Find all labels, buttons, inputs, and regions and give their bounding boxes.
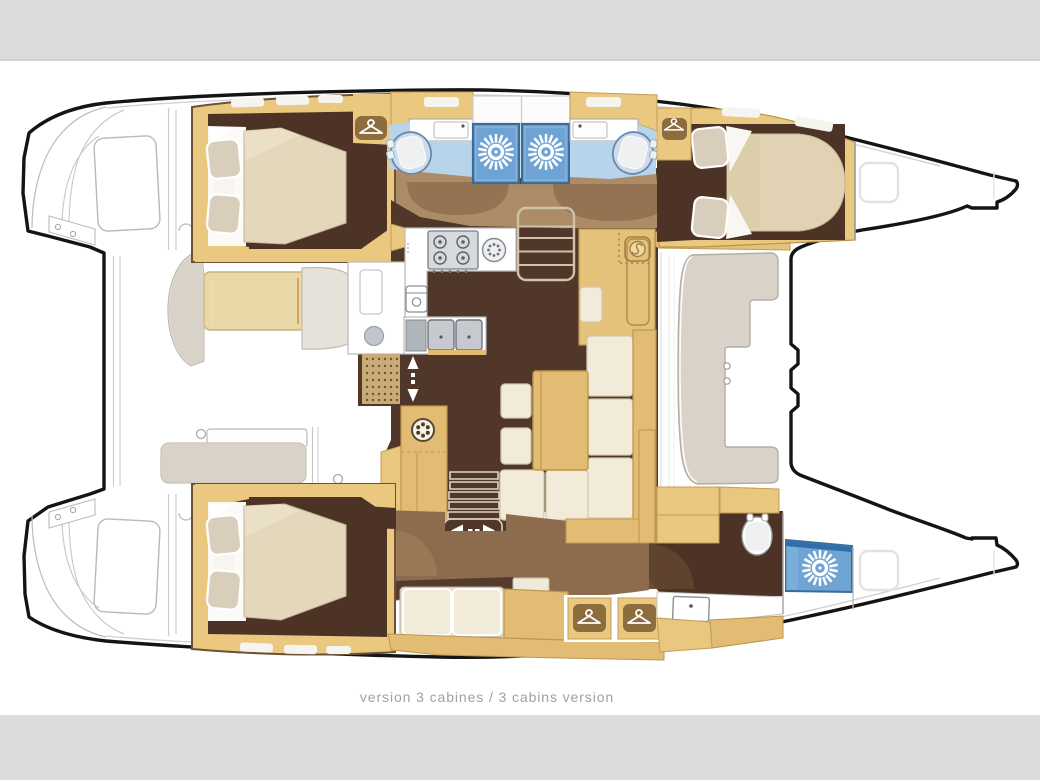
svg-text:version 3 cabines / 3 cabins v: version 3 cabines / 3 cabins version [360, 689, 614, 705]
